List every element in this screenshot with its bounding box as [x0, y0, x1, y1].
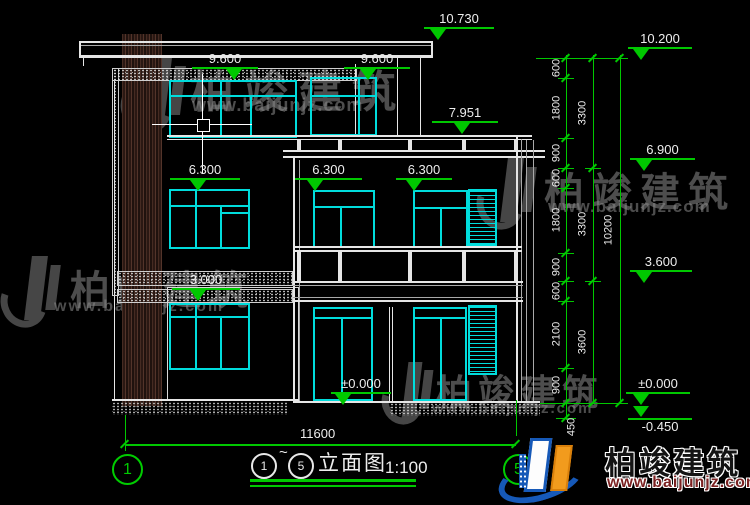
- roof-edge-tick: [83, 58, 84, 66]
- wall-left-edge: [293, 157, 295, 403]
- window-transom: [220, 212, 250, 214]
- window-frame: [313, 190, 375, 248]
- tower-edge-line: [420, 58, 421, 135]
- dimension-label: 600: [552, 59, 563, 77]
- watermark-logo-icon: [6, 256, 64, 334]
- dimension-label: 1800: [552, 96, 563, 120]
- watermark-url-text: www.baijunjz.com: [548, 197, 711, 217]
- stipple-wall-strip: [112, 68, 119, 296]
- floor-line: [167, 139, 532, 140]
- dimension-label: 900: [552, 376, 563, 394]
- window-mullion: [195, 189, 197, 249]
- window-mullion: [340, 207, 342, 248]
- grid-bubble-1: 1: [112, 454, 143, 485]
- roof-slab-left-cap: [79, 41, 81, 58]
- elevation-triangle-icon: [360, 69, 376, 80]
- louver-shutter: [468, 189, 497, 246]
- elevation-triangle-icon: [307, 180, 323, 191]
- elevation-label: 3.000: [172, 273, 240, 287]
- window-transom: [169, 316, 250, 318]
- elevation-marker: 3.000: [172, 273, 240, 301]
- door-transom: [313, 317, 373, 319]
- elevation-marker: 9.600: [192, 52, 258, 80]
- elevation-marker: ±0.000: [626, 377, 690, 405]
- window-transom: [169, 205, 250, 207]
- dimension-label: 900: [552, 144, 563, 162]
- elevation-line: [192, 67, 258, 69]
- elevation-label: 6.300: [396, 163, 452, 177]
- window-mullion: [440, 208, 442, 248]
- elevation-marker: 6.300: [170, 163, 240, 191]
- balcony-slab-line: [283, 156, 545, 158]
- railing-post: [338, 139, 342, 150]
- wood-cladding-strip: [122, 34, 162, 406]
- rear-building-edge: [526, 140, 527, 402]
- elevation-marker: 6.300: [396, 163, 452, 191]
- width-dimension-label: 11600: [300, 427, 335, 440]
- floor-line: [167, 135, 532, 137]
- elevation-triangle-icon: [190, 180, 206, 191]
- dimension-label: 2100: [552, 322, 563, 346]
- dimension-label: 450: [567, 418, 578, 436]
- elevation-label: 6.900: [630, 143, 695, 157]
- elevation-line: [396, 178, 452, 180]
- elevation-marker: 3.600: [630, 255, 692, 283]
- dimension-label: 3300: [578, 212, 589, 236]
- elevation-label: 10.730: [424, 12, 494, 26]
- elevation-triangle-icon: [633, 406, 649, 417]
- title-tilde: ~: [279, 445, 288, 460]
- elevation-marker: 9.600: [344, 52, 410, 80]
- elevation-triangle-icon: [633, 394, 649, 405]
- elevation-label: 9.600: [192, 52, 258, 66]
- elevation-label: 9.600: [344, 52, 410, 66]
- roof-slab-inner-line: [79, 45, 433, 46]
- dimension-label: 600: [552, 282, 563, 300]
- elevation-marker: 6.900: [630, 143, 695, 171]
- elevation-triangle-icon: [226, 69, 242, 80]
- railing-post: [408, 139, 412, 150]
- window-mullion: [195, 303, 197, 370]
- dimension-label: 10200: [604, 215, 615, 246]
- railing-post: [462, 139, 466, 150]
- elevation-marker: 7.951: [432, 106, 498, 134]
- window-transom: [310, 95, 377, 97]
- window-frame: [169, 189, 250, 249]
- elevation-triangle-icon: [190, 290, 206, 301]
- railing-post: [297, 139, 301, 150]
- window-frame: [310, 77, 377, 136]
- floor-slab-line: [293, 285, 523, 286]
- logo-building-windows: [519, 454, 526, 488]
- brand-logo: 柏竣建筑 www.baijunjz.com: [497, 438, 747, 504]
- balcony-slab-line: [283, 150, 545, 152]
- title-circle-from: 1: [251, 453, 277, 479]
- window-frame: [169, 80, 297, 138]
- width-dimension-line: [125, 444, 516, 446]
- door-mullion: [440, 318, 442, 401]
- dimension-label: 3600: [578, 330, 589, 354]
- window-transom: [313, 206, 375, 208]
- elevation-line: [344, 67, 410, 69]
- elevation-label: 3.600: [630, 255, 692, 269]
- elevation-triangle-icon: [335, 394, 351, 405]
- elevation-marker-inverted: -0.450: [628, 406, 692, 434]
- drawing-title: 立面图: [318, 453, 387, 474]
- floor-slab-line: [293, 281, 523, 283]
- window-mullion: [220, 80, 222, 138]
- floor-slab-line: [293, 297, 523, 298]
- railing-post: [408, 252, 412, 281]
- elevation-line: [295, 178, 362, 180]
- elevation-label: ±0.000: [626, 377, 690, 391]
- elevation-triangle-icon: [636, 160, 652, 171]
- title-underline: [250, 479, 416, 482]
- elevation-triangle-icon: [633, 49, 649, 60]
- dimension-extension-line: [516, 400, 517, 436]
- railing-post: [297, 252, 301, 281]
- title-circle-to: 5: [288, 453, 314, 479]
- railing-post: [338, 252, 342, 281]
- elevation-label: -0.450: [628, 420, 692, 434]
- dimension-chain-line: [593, 55, 594, 403]
- elevation-marker: 6.300: [295, 163, 362, 191]
- rear-building-edge: [533, 140, 534, 402]
- elevation-label: 6.300: [170, 163, 240, 177]
- elevation-triangle-icon: [454, 123, 470, 134]
- floor-slab-line: [293, 300, 523, 302]
- window-frame: [169, 303, 250, 370]
- louver-shutter: [468, 305, 497, 375]
- cad-drawing-canvas[interactable]: 柏竣建筑 www.baijunjz.com 柏竣建筑 www.baijunjz.…: [0, 0, 750, 505]
- railing-post: [514, 252, 518, 281]
- sill-line: [293, 246, 522, 248]
- dimension-label: 1800: [552, 208, 563, 232]
- elevation-line: [172, 288, 240, 290]
- elevation-label: 7.951: [432, 106, 498, 120]
- window-transom: [169, 95, 297, 97]
- elevation-label: 6.300: [295, 163, 362, 177]
- ground-line: [112, 399, 300, 401]
- window-mullion: [220, 317, 222, 370]
- brand-url-text: www.baijunjz.com: [607, 474, 750, 492]
- window-mullion: [358, 77, 360, 136]
- wall-right-edge-inner: [521, 139, 522, 403]
- elevation-label: 10.200: [628, 32, 692, 46]
- roof-slab-top-line: [79, 41, 433, 43]
- railing-post: [462, 252, 466, 281]
- dimension-label: 900: [552, 258, 563, 276]
- elevation-triangle-icon: [636, 272, 652, 283]
- elevation-triangle-icon: [430, 29, 446, 40]
- elevation-label: ±0.000: [331, 377, 391, 391]
- dimension-chain-line: [620, 55, 621, 403]
- drawing-scale: 1:100: [385, 459, 428, 476]
- dimension-label: 600: [552, 169, 563, 187]
- elevation-marker: 10.200: [628, 32, 692, 60]
- title-underline: [250, 485, 416, 487]
- ground-stipple: [112, 402, 288, 415]
- elevation-marker: ±0.000: [331, 377, 391, 405]
- ground-stipple: [390, 403, 540, 416]
- pier-line: [392, 307, 393, 402]
- dimension-label: 3300: [578, 101, 589, 125]
- elevation-triangle-icon: [406, 180, 422, 191]
- roof-slab-right-cap: [431, 41, 433, 58]
- window-mullion: [250, 96, 252, 138]
- crosshair-pickbox: [197, 119, 210, 132]
- elevation-marker: 10.730: [424, 12, 494, 40]
